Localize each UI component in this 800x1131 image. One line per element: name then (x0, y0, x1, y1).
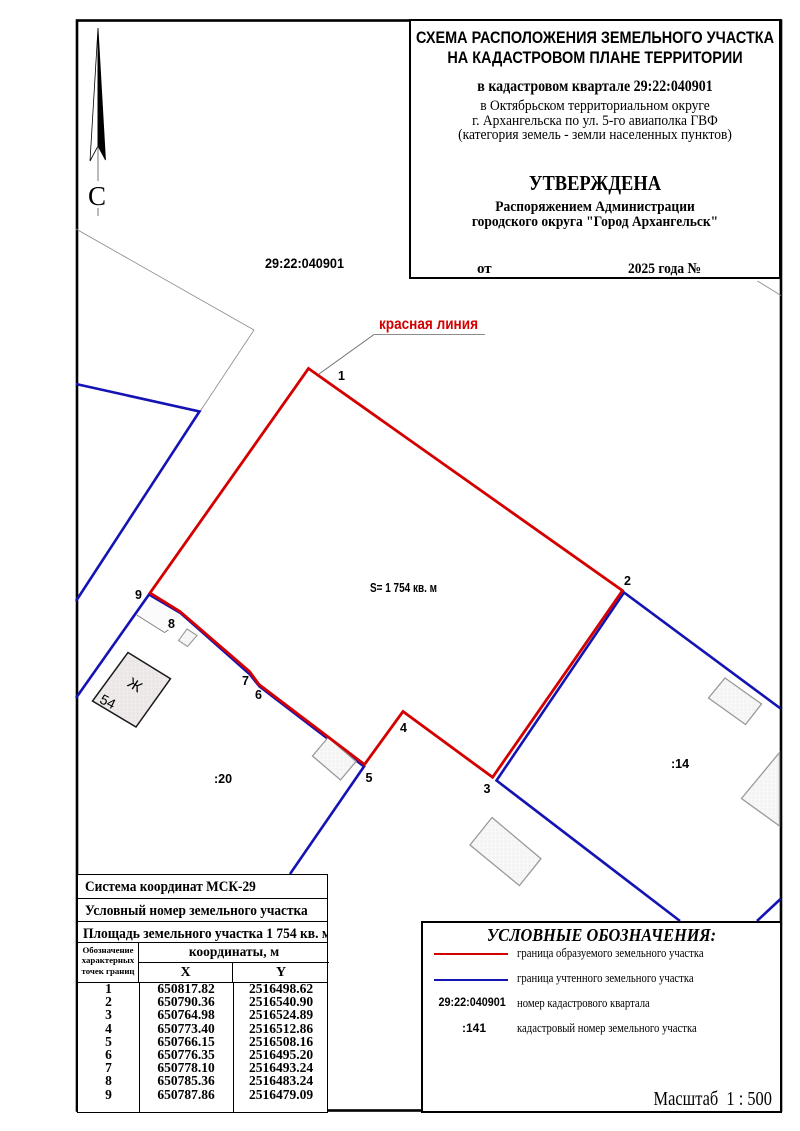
svg-text:6: 6 (255, 688, 262, 702)
svg-text:7: 7 (242, 674, 249, 688)
svg-text:С: С (88, 181, 106, 211)
svg-text:3: 3 (484, 782, 491, 796)
svg-text:8: 8 (168, 617, 175, 631)
svg-text:29:22:040901: 29:22:040901 (265, 256, 344, 271)
svg-text:5: 5 (366, 771, 373, 785)
svg-text:S= 1 754 кв. м: S= 1 754 кв. м (370, 581, 437, 595)
svg-text:9: 9 (135, 588, 142, 602)
svg-text:1: 1 (338, 369, 345, 383)
svg-text:красная линия: красная линия (379, 316, 478, 333)
svg-text:4: 4 (400, 721, 407, 735)
svg-text:2: 2 (624, 574, 631, 588)
svg-text::14: :14 (671, 757, 689, 771)
svg-text::20: :20 (214, 772, 232, 786)
